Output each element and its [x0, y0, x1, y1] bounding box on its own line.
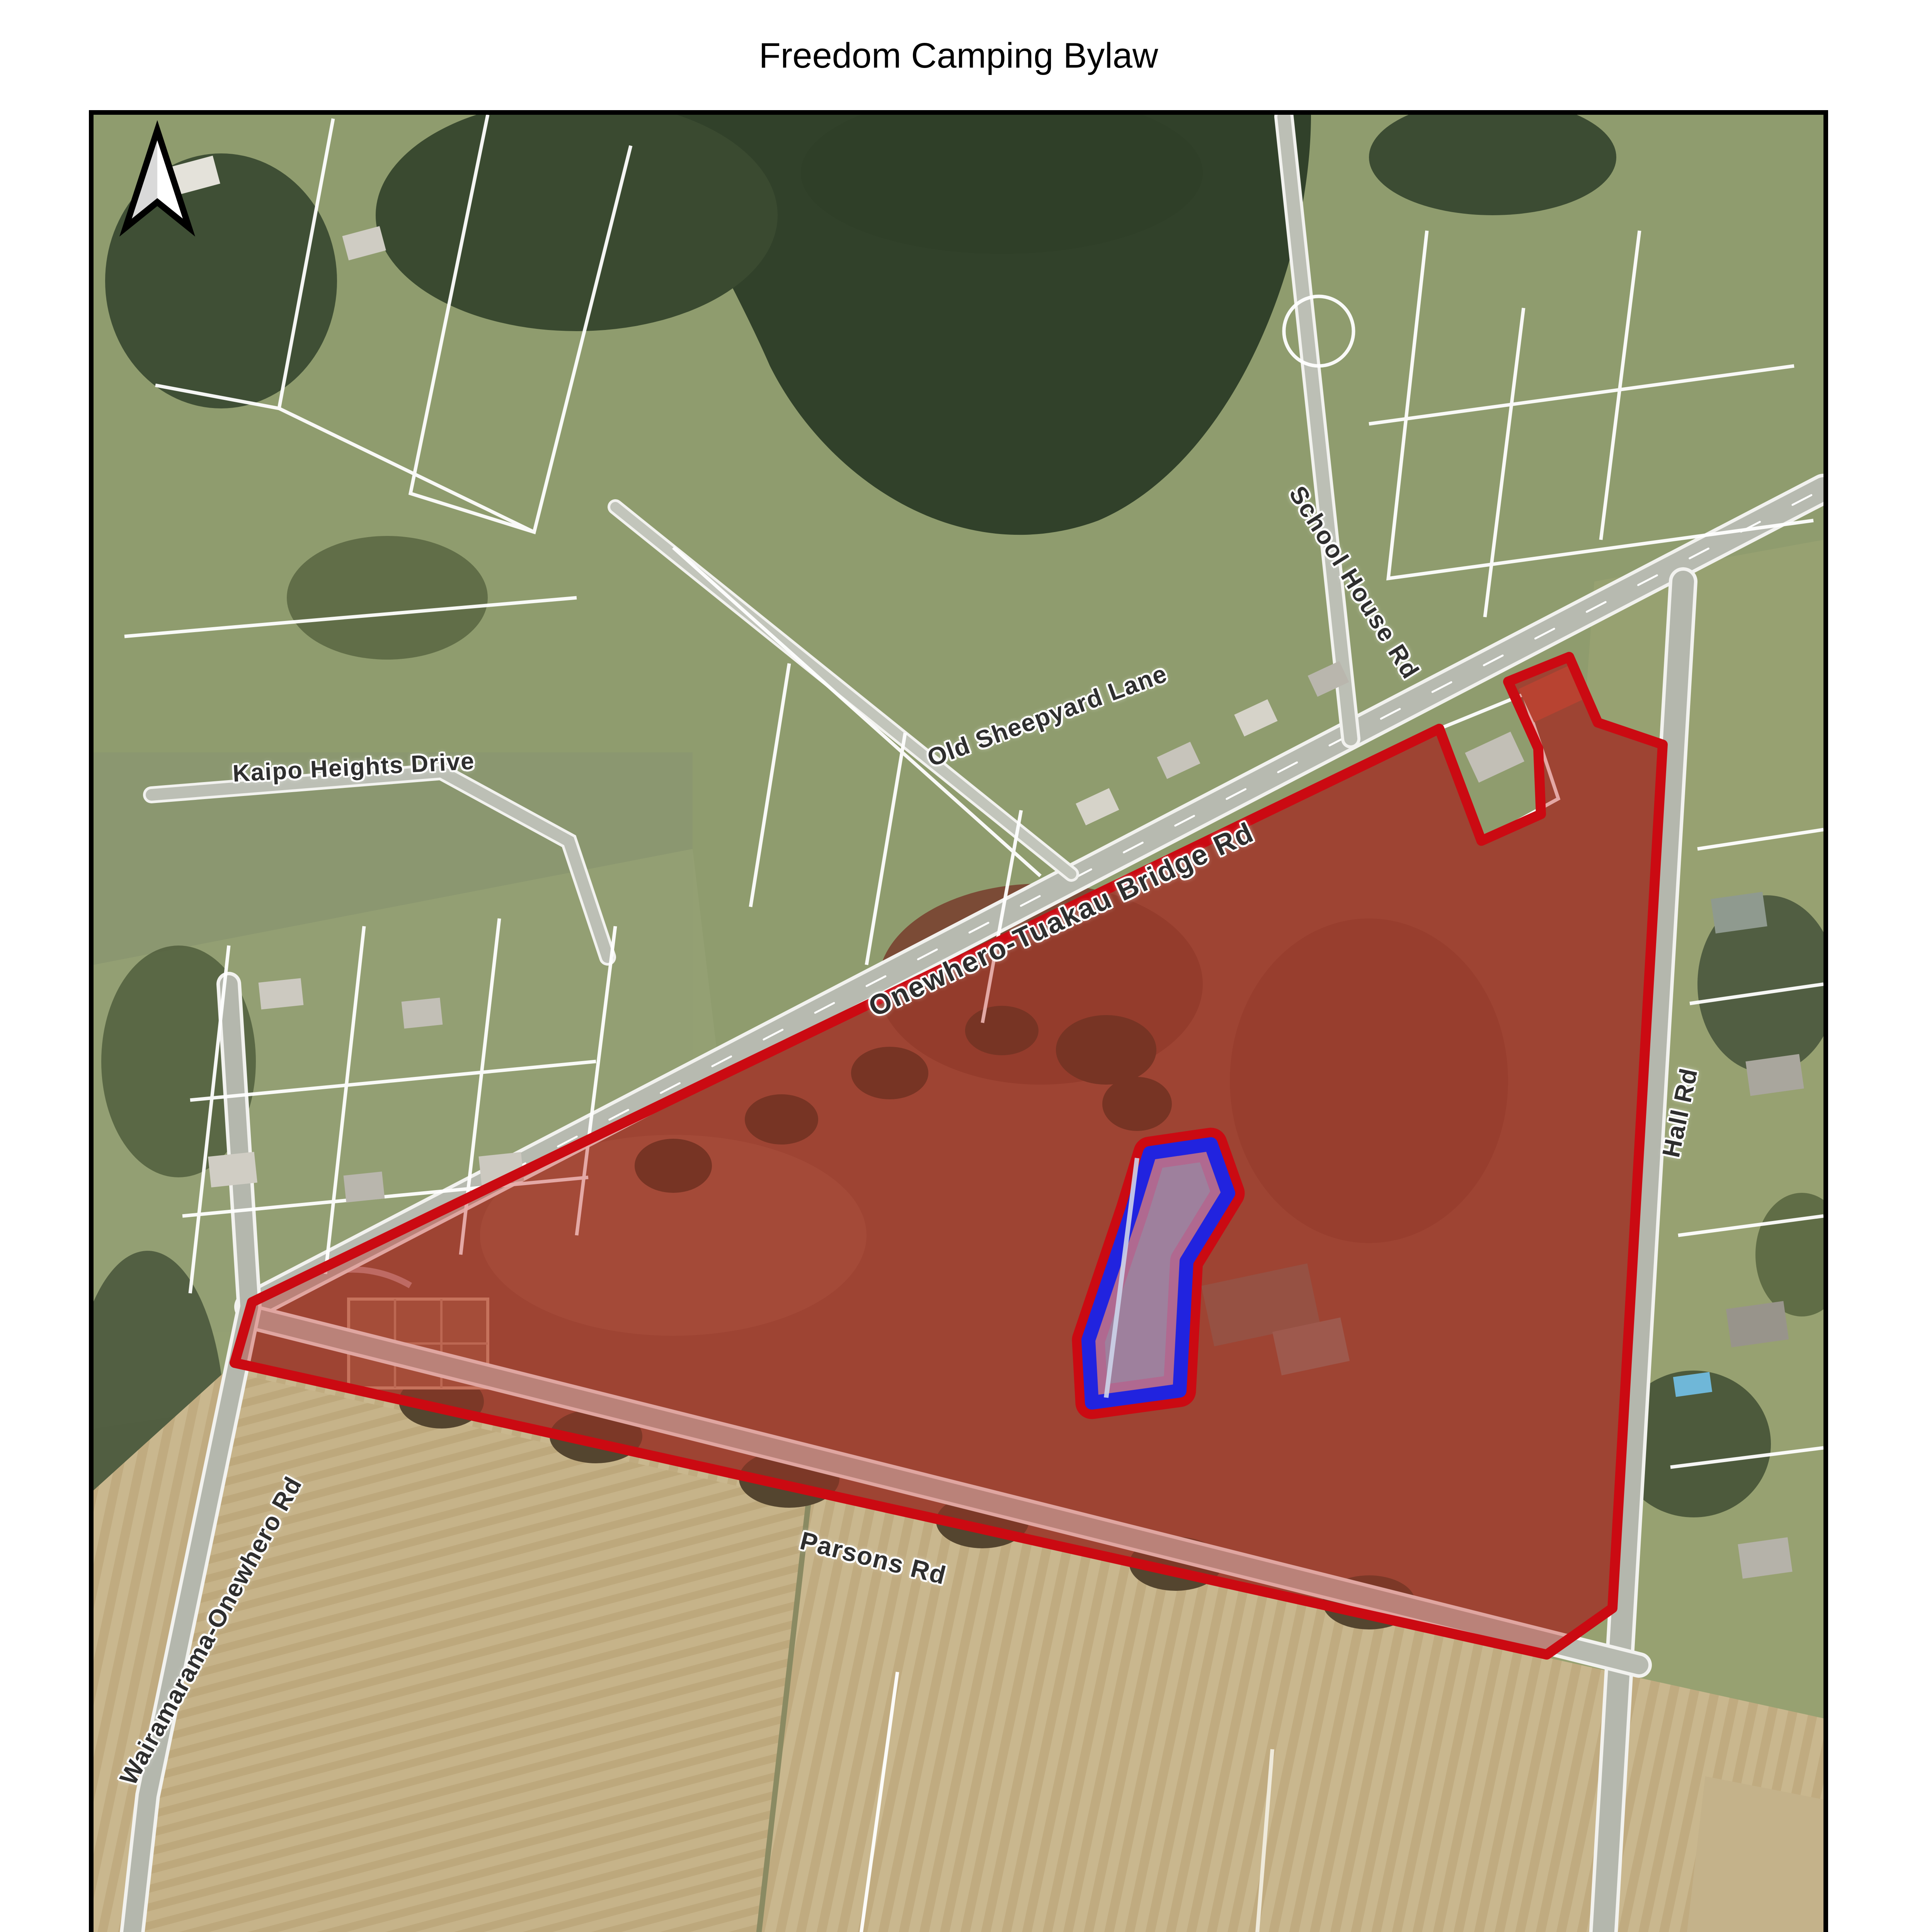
map-canvas: School House Rd Old Sheepyard Lane Kaipo… [89, 110, 1828, 1932]
aerial-photo [94, 115, 1823, 1932]
page-title: Freedom Camping Bylaw [0, 36, 1917, 76]
